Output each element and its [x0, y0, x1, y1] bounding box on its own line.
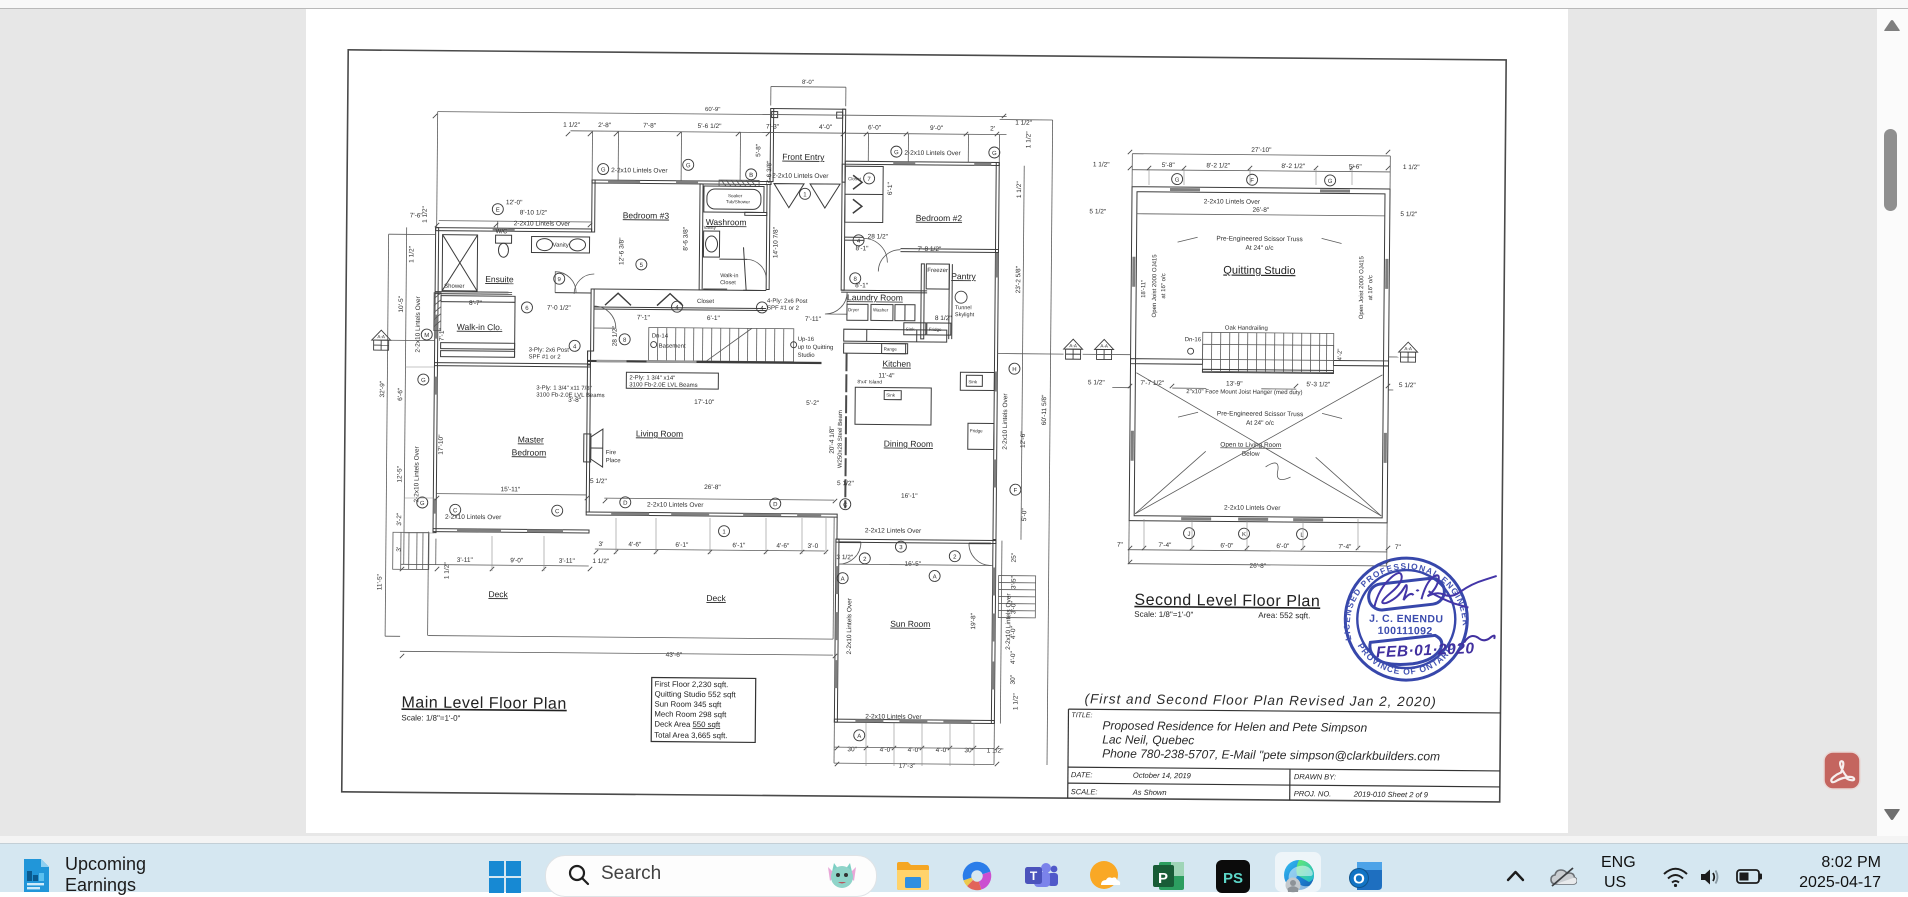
svg-text:7'-1": 7'-1"	[637, 314, 651, 321]
svg-text:A: A	[933, 574, 937, 580]
svg-text:8'-1": 8'-1"	[855, 245, 869, 252]
svg-text:1 1/2": 1 1/2"	[408, 245, 415, 263]
svg-text:SPF #1 or 2: SPF #1 or 2	[529, 354, 562, 360]
svg-text:12'-6 3/8": 12'-6 3/8"	[618, 237, 625, 265]
svg-text:26'-8": 26'-8"	[1253, 207, 1270, 214]
svg-text:Quitting Studio 552 sqft: Quitting Studio 552 sqft	[655, 690, 737, 700]
svg-text:5 1/2": 5 1/2"	[1089, 208, 1107, 215]
svg-text:Deck: Deck	[488, 589, 508, 599]
svg-text:4: 4	[857, 239, 861, 245]
svg-text:G: G	[420, 501, 425, 507]
svg-text:Open Joist 2000 OJ415: Open Joist 2000 OJ415	[1152, 254, 1159, 318]
svg-text:Bedroom #3: Bedroom #3	[623, 210, 670, 220]
svg-text:23'-2 5/8": 23'-2 5/8"	[1015, 265, 1022, 293]
svg-text:1 1/2": 1 1/2"	[444, 562, 451, 580]
svg-text:4: 4	[573, 344, 577, 350]
svg-text:7": 7"	[1395, 544, 1402, 551]
svg-text:Deck: Deck	[706, 593, 726, 603]
svg-text:Dining Room: Dining Room	[884, 439, 933, 449]
svg-text:1 1/2": 1 1/2"	[1012, 693, 1019, 711]
svg-text:3': 3'	[598, 541, 603, 548]
svg-text:Closet: Closet	[720, 280, 736, 286]
svg-text:5'-6 1/2": 5'-6 1/2"	[698, 123, 723, 130]
svg-text:11'-5": 11'-5"	[377, 573, 384, 590]
svg-text:Fire: Fire	[606, 450, 617, 456]
svg-text:2-2x10 Lintels Over: 2-2x10 Lintels Over	[413, 445, 420, 502]
svg-text:1: 1	[803, 192, 807, 198]
svg-text:2-2x10 Lintels Over: 2-2x10 Lintels Over	[772, 173, 829, 180]
svg-text:6'-1": 6'-1"	[675, 542, 689, 549]
svg-text:6'-0": 6'-0"	[868, 124, 882, 131]
svg-text:Front Entry: Front Entry	[782, 152, 825, 162]
svg-text:Sun Room: Sun Room	[890, 619, 930, 629]
svg-text:Walk-in Clo.: Walk-in Clo.	[457, 322, 503, 332]
svg-text:3'-11": 3'-11"	[559, 558, 576, 565]
svg-text:DRAWN BY:: DRAWN BY:	[1294, 772, 1336, 781]
svg-text:8 1/2": 8 1/2"	[935, 315, 953, 322]
svg-text:Main Level Floor Plan: Main Level Floor Plan	[401, 694, 566, 712]
svg-text:At 24" o/c: At 24" o/c	[1246, 245, 1275, 252]
svg-text:1 1/2": 1 1/2"	[1403, 164, 1421, 171]
svg-text:5: 5	[640, 263, 644, 269]
svg-text:3'-11": 3'-11"	[457, 557, 474, 564]
svg-text:Basement: Basement	[659, 344, 686, 350]
svg-text:Freezer: Freezer	[927, 268, 948, 274]
svg-text:Kitchen: Kitchen	[882, 359, 911, 369]
svg-text:2-2x10 Lintels Over: 2-2x10 Lintels Over	[865, 713, 922, 720]
svg-text:A-A: A-A	[377, 334, 385, 339]
svg-text:5'-0": 5'-0"	[1021, 508, 1028, 522]
svg-text:October 14, 2019: October 14, 2019	[1133, 771, 1192, 781]
svg-text:Dn-14: Dn-14	[652, 334, 669, 340]
svg-text:60'-11 5/8": 60'-11 5/8"	[1041, 394, 1048, 425]
svg-text:43'-6": 43'-6"	[666, 652, 683, 659]
svg-text:M: M	[424, 333, 429, 339]
svg-text:L: L	[1300, 533, 1304, 539]
svg-text:Oak Handrailing: Oak Handrailing	[1225, 326, 1268, 332]
svg-text:6: 6	[525, 306, 529, 312]
svg-text:A: A	[841, 577, 845, 583]
svg-text:2-2x10 Lintels Over: 2-2x10 Lintels Over	[846, 597, 853, 654]
svg-text:5'-3 1/2": 5'-3 1/2"	[1306, 381, 1331, 388]
svg-text:7'-0 1/2": 7'-0 1/2"	[547, 305, 572, 312]
svg-text:3-Ply: 2x6 Post: 3-Ply: 2x6 Post	[529, 347, 570, 353]
svg-text:Sun Room 345 sqft: Sun Room 345 sqft	[654, 700, 722, 710]
svg-text:Total Area 3,665 sqft.: Total Area 3,665 sqft.	[654, 731, 727, 741]
svg-text:A-A: A-A	[1404, 346, 1412, 351]
svg-text:20'-4 1/8": 20'-4 1/8"	[829, 426, 836, 454]
svg-text:PROJ. NO.: PROJ. NO.	[1294, 789, 1332, 798]
svg-text:1: 1	[722, 530, 726, 536]
svg-text:7'-4": 7'-4"	[1338, 544, 1352, 551]
svg-text:Place: Place	[606, 458, 622, 464]
svg-text:4'-6": 4'-6"	[776, 543, 790, 550]
svg-text:5 1/2": 5 1/2"	[1088, 379, 1106, 386]
svg-text:Washer: Washer	[873, 307, 889, 312]
svg-text:H: H	[1012, 367, 1016, 373]
svg-text:1 1/2": 1 1/2"	[592, 558, 610, 565]
svg-text:3'-5": 3'-5"	[1011, 575, 1018, 589]
svg-text:F: F	[1250, 178, 1254, 184]
svg-text:100111092: 100111092	[1378, 625, 1433, 637]
svg-text:9: 9	[558, 277, 562, 283]
svg-text:at 16" o/c: at 16" o/c	[1368, 275, 1374, 300]
svg-text:2: 2	[953, 555, 957, 561]
svg-text:2-2x12 Lintels Over: 2-2x12 Lintels Over	[865, 527, 922, 534]
svg-text:7: 7	[867, 177, 871, 183]
svg-text:As Shown: As Shown	[1132, 788, 1167, 797]
svg-text:3: 3	[899, 545, 903, 551]
svg-text:12'-6": 12'-6"	[1020, 431, 1027, 448]
svg-text:14'-10 7/8": 14'-10 7/8"	[772, 226, 779, 258]
svg-text:At 24" o/c: At 24" o/c	[1246, 420, 1275, 427]
svg-text:4'-0": 4'-0"	[819, 124, 833, 131]
svg-text:10'-5": 10'-5"	[398, 295, 405, 312]
svg-text:Tub/Shower: Tub/Shower	[726, 199, 751, 204]
svg-text:A-A: A-A	[1069, 343, 1077, 348]
svg-text:5'-2": 5'-2"	[806, 400, 820, 407]
svg-text:13'-9": 13'-9"	[1226, 381, 1243, 388]
svg-text:Tunnel: Tunnel	[955, 305, 972, 311]
svg-text:7": 7"	[1117, 542, 1124, 549]
svg-text:T: T	[1030, 869, 1038, 883]
svg-text:G: G	[601, 168, 606, 174]
svg-text:Soaker: Soaker	[728, 193, 743, 198]
svg-text:3100 Fb-2.0E LVL Beams: 3100 Fb-2.0E LVL Beams	[629, 382, 697, 389]
svg-text:2-2x10 Lintels Over: 2-2x10 Lintels Over	[514, 220, 571, 227]
svg-text:Up-16: Up-16	[798, 337, 815, 343]
svg-text:8'-2 1/2": 8'-2 1/2"	[1206, 162, 1231, 169]
svg-text:G: G	[686, 163, 691, 169]
svg-text:19'-8": 19'-8"	[970, 612, 977, 629]
svg-text:32'-9": 32'-9"	[379, 380, 386, 397]
svg-text:J: J	[1187, 532, 1190, 538]
svg-text:Sink: Sink	[886, 393, 896, 398]
svg-text:PS: PS	[1223, 870, 1243, 887]
svg-text:2-2x10 Lintels Over: 2-2x10 Lintels Over	[904, 150, 961, 157]
svg-text:60'-9": 60'-9"	[705, 107, 720, 113]
svg-text:Second Level Floor Plan: Second Level Floor Plan	[1134, 592, 1320, 611]
svg-text:Pantry: Pantry	[951, 271, 976, 281]
svg-text:8: 8	[623, 338, 627, 344]
svg-text:12'-0": 12'-0"	[506, 199, 523, 206]
svg-text:2'-8": 2'-8"	[598, 122, 612, 129]
svg-text:2-Ply: 1 3/4" x14": 2-Ply: 1 3/4" x14"	[629, 375, 675, 381]
svg-text:Mech Room 298 sqft: Mech Room 298 sqft	[654, 710, 727, 720]
svg-text:6'-0": 6'-0"	[1220, 542, 1234, 549]
svg-text:(First and Second Floor Plan R: (First and Second Floor Plan Revised Jan…	[1085, 691, 1437, 709]
svg-text:2-2x10 Lintels Over: 2-2x10 Lintels Over	[647, 501, 704, 508]
svg-text:Pre-Engineered Scissor Truss: Pre-Engineered Scissor Truss	[1216, 235, 1303, 243]
svg-text:26'-8": 26'-8"	[704, 484, 721, 491]
svg-text:4'-6": 4'-6"	[628, 541, 642, 548]
svg-text:7'-6 3/8": 7'-6 3/8"	[766, 160, 773, 185]
svg-text:G: G	[894, 150, 899, 156]
svg-text:SCALE:: SCALE:	[1071, 787, 1098, 796]
svg-text:2-2x10 Lintels Over: 2-2x10 Lintels Over	[415, 295, 422, 352]
svg-text:Living Room: Living Room	[636, 428, 683, 438]
svg-text:Vanity: Vanity	[552, 243, 568, 249]
svg-text:3'-0: 3'-0	[808, 543, 819, 550]
svg-text:3 1/2": 3 1/2"	[836, 554, 854, 561]
svg-text:5 1/2": 5 1/2"	[1400, 211, 1418, 218]
svg-text:4-Ply: 2x6 Post: 4-Ply: 2x6 Post	[767, 299, 808, 305]
svg-text:30": 30"	[1010, 674, 1017, 684]
svg-text:2-2x10 Lintels Over: 2-2x10 Lintels Over	[1002, 393, 1009, 450]
svg-text:2-2x10 Lintels Over: 2-2x10 Lintels Over	[1224, 505, 1281, 512]
svg-text:C: C	[843, 503, 848, 509]
svg-text:A-A: A-A	[1100, 343, 1108, 348]
svg-text:6'-1": 6'-1"	[732, 542, 746, 549]
svg-text:1 1/2": 1 1/2"	[1025, 131, 1032, 149]
svg-text:Bedroom: Bedroom	[512, 447, 547, 457]
svg-text:7'-4": 7'-4"	[1158, 542, 1172, 549]
svg-text:FEB·01·2020: FEB·01·2020	[1376, 640, 1475, 661]
svg-text:Area: 552 sqft.: Area: 552 sqft.	[1258, 611, 1310, 620]
svg-text:6'-0": 6'-0"	[1276, 543, 1290, 550]
svg-text:Fridge: Fridge	[970, 428, 983, 433]
svg-text:Shower: Shower	[444, 284, 464, 290]
svg-text:1 1/2": 1 1/2"	[1016, 181, 1023, 199]
svg-text:16'-1": 16'-1"	[901, 493, 918, 500]
svg-text:1 1/2": 1 1/2"	[1093, 161, 1111, 168]
svg-text:C: C	[555, 509, 560, 515]
svg-text:7'-11": 7'-11"	[805, 316, 822, 323]
svg-text:2: 2	[863, 557, 867, 563]
svg-text:First Floor 2,230 sqft.: First Floor 2,230 sqft.	[655, 680, 729, 690]
svg-text:Ensuite: Ensuite	[485, 274, 514, 284]
svg-text:P: P	[1158, 870, 1168, 887]
svg-text:5 1/2": 5 1/2"	[1399, 382, 1417, 389]
svg-text:7'-8": 7'-8"	[643, 122, 657, 129]
svg-text:Deck Area 550 sqft: Deck Area 550 sqft	[654, 720, 721, 730]
svg-text:W/C: W/C	[496, 229, 508, 235]
svg-text:Dn-16: Dn-16	[1185, 337, 1202, 343]
svg-text:Laundry Room: Laundry Room	[847, 292, 903, 302]
svg-text:D: D	[623, 501, 628, 507]
svg-text:2019-010 Sheet 2 of 9: 2019-010 Sheet 2 of 9	[1353, 790, 1429, 800]
svg-text:Studio: Studio	[798, 353, 816, 359]
svg-text:5 1/2": 5 1/2"	[837, 480, 855, 487]
svg-text:2-2x10 Lintels Over: 2-2x10 Lintels Over	[1204, 198, 1261, 205]
svg-text:Pre-Engineered Scissor Truss: Pre-Engineered Scissor Truss	[1217, 410, 1304, 418]
svg-text:G: G	[1328, 179, 1333, 185]
svg-text:11'-4": 11'-4"	[878, 372, 895, 379]
svg-text:SPF #1 or 2: SPF #1 or 2	[767, 306, 800, 312]
svg-text:Range: Range	[884, 347, 898, 352]
svg-text:Quitting Studio: Quitting Studio	[1223, 264, 1295, 277]
svg-text:9'-0": 9'-0"	[930, 125, 944, 132]
svg-text:F: F	[1014, 488, 1018, 494]
svg-text:at 16" o/c: at 16" o/c	[1161, 273, 1167, 298]
svg-text:up to Quitting: up to Quitting	[798, 345, 834, 351]
svg-text:2': 2'	[990, 125, 995, 132]
svg-text:W250x28 Steel Beam: W250x28 Steel Beam	[838, 410, 845, 468]
svg-text:4'-0": 4'-0"	[1010, 650, 1017, 664]
svg-text:9'-0": 9'-0"	[510, 557, 524, 564]
svg-text:26'-8": 26'-8"	[1249, 563, 1266, 570]
svg-text:4'-2": 4'-2"	[1338, 349, 1344, 361]
svg-text:28 1/2": 28 1/2"	[868, 233, 889, 240]
svg-text:5 1/2": 5 1/2"	[590, 478, 608, 485]
svg-text:8'x4' Island: 8'x4' Island	[857, 379, 882, 385]
svg-text:Master: Master	[518, 434, 544, 444]
svg-text:Walk-in: Walk-in	[720, 273, 738, 279]
svg-text:7'-3": 7'-3"	[766, 123, 780, 130]
svg-text:Bedroom #2: Bedroom #2	[916, 213, 963, 223]
svg-text:J. C. ENENDU: J. C. ENENDU	[1369, 613, 1443, 626]
svg-text:G: G	[1175, 178, 1180, 184]
svg-text:G: G	[992, 151, 997, 157]
svg-text:A: A	[857, 734, 861, 740]
svg-text:12'-5": 12'-5"	[396, 465, 403, 482]
svg-text:16'-5": 16'-5"	[904, 561, 921, 568]
svg-text:25": 25"	[1011, 552, 1018, 562]
svg-text:17'-10": 17'-10"	[438, 434, 445, 455]
svg-text:3-Ply: 1 3/4" x11 7/8": 3-Ply: 1 3/4" x11 7/8"	[536, 386, 592, 392]
svg-text:Closet: Closet	[697, 299, 714, 305]
svg-text:6'-6": 6'-6"	[397, 387, 404, 401]
svg-text:15'-11": 15'-11"	[501, 486, 521, 493]
svg-text:Scale: 1/8"=1'-0": Scale: 1/8"=1'-0"	[401, 713, 460, 723]
svg-text:8'-6 3/8": 8'-6 3/8"	[682, 226, 689, 251]
svg-text:2-2x10 Lintels Over: 2-2x10 Lintels Over	[611, 167, 668, 174]
svg-text:18'-11": 18'-11"	[1141, 280, 1147, 298]
svg-text:Dryer: Dryer	[848, 307, 860, 312]
svg-text:B: B	[749, 173, 753, 179]
svg-text:6'-1": 6'-1"	[887, 181, 894, 195]
svg-text:8'-0": 8'-0"	[802, 80, 814, 86]
svg-text:27'-10": 27'-10"	[1251, 147, 1272, 154]
svg-text:6'-1": 6'-1"	[707, 315, 721, 322]
svg-text:C: C	[453, 508, 458, 514]
svg-text:Open Joist 2000 OJ415: Open Joist 2000 OJ415	[1359, 255, 1366, 319]
svg-text:2"x10" Face Mount Joist Hanger: 2"x10" Face Mount Joist Hanger (med duty…	[1186, 389, 1302, 396]
svg-text:Sink: Sink	[968, 379, 978, 384]
svg-text:Phone 780-238-5707, E-Mail "pe: Phone 780-238-5707, E-Mail "pete simpson…	[1102, 746, 1440, 763]
svg-text:1 1/2": 1 1/2"	[1015, 120, 1033, 127]
svg-text:1 1/2": 1 1/2"	[422, 205, 429, 223]
svg-text:TITLE:: TITLE:	[1071, 712, 1092, 719]
svg-text:17'-10": 17'-10"	[694, 399, 715, 406]
svg-text:E: E	[496, 208, 500, 214]
svg-text:Scale: 1/8"=1'-0": Scale: 1/8"=1'-0"	[1134, 610, 1193, 620]
svg-text:3': 3'	[396, 547, 403, 552]
svg-text:3100 Fb-2.0E LVL Beams: 3100 Fb-2.0E LVL Beams	[536, 393, 604, 400]
svg-text:K: K	[1242, 532, 1246, 538]
svg-text:5'-8": 5'-8"	[755, 143, 762, 157]
svg-text:Skylight: Skylight	[955, 312, 975, 318]
svg-text:3'-2": 3'-2"	[396, 512, 403, 526]
svg-text:8'-2 1/2": 8'-2 1/2"	[1281, 163, 1306, 170]
svg-text:1 1/2": 1 1/2"	[563, 122, 581, 129]
svg-text:8'-1": 8'-1"	[855, 282, 869, 289]
svg-text:7'-8 1/2": 7'-8 1/2"	[917, 246, 942, 253]
svg-text:Vanity: Vanity	[704, 225, 717, 230]
svg-text:Below: Below	[1242, 451, 1260, 458]
svg-text:5'-8": 5'-8"	[1162, 162, 1176, 169]
svg-text:G: G	[421, 378, 426, 384]
svg-text:7'-7 1/2": 7'-7 1/2"	[1140, 380, 1165, 387]
svg-text:DATE:: DATE:	[1071, 770, 1093, 779]
svg-text:8'-10 1/2": 8'-10 1/2"	[520, 209, 548, 216]
svg-text:Closet: Closet	[848, 176, 862, 181]
svg-text:Lac Neil, Quebec: Lac Neil, Quebec	[1102, 732, 1194, 747]
svg-text:D: D	[773, 502, 778, 508]
svg-text:8'-7": 8'-7"	[469, 300, 483, 307]
svg-text:Open to Living Room: Open to Living Room	[1220, 441, 1281, 449]
svg-text:7'-1": 7'-1"	[439, 327, 446, 341]
svg-text:28 1/2": 28 1/2"	[612, 325, 619, 346]
svg-text:2-2x10 Lintels Over: 2-2x10 Lintels Over	[1005, 593, 1012, 650]
svg-text:O: O	[1353, 871, 1365, 888]
